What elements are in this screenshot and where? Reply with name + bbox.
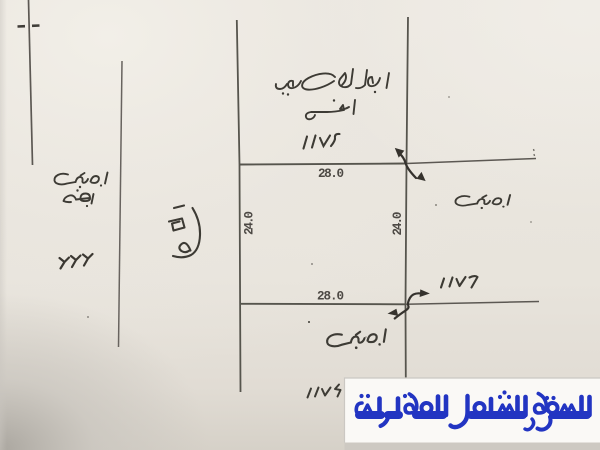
svg-text:28.0: 28.0 [317, 290, 344, 304]
svg-text:24.0: 24.0 [243, 211, 257, 235]
svg-text:28.0: 28.0 [318, 167, 344, 181]
svg-text:24.0: 24.0 [391, 212, 405, 236]
